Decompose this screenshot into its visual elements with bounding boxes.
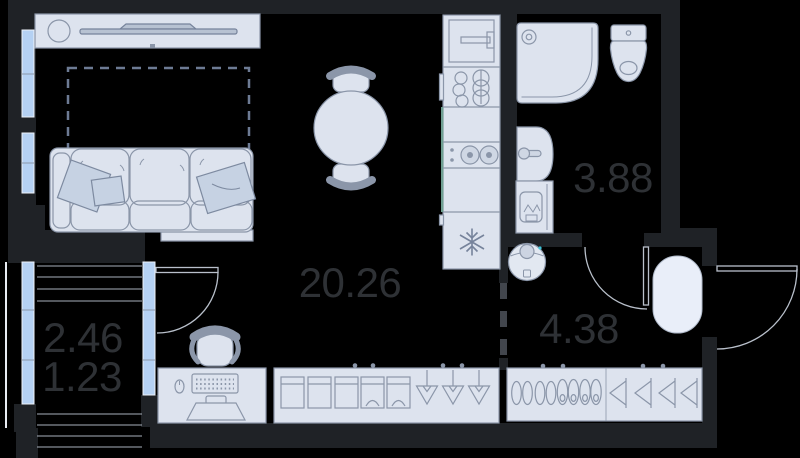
living-kitchen-area-label: 20.26: [299, 259, 402, 306]
dining-chair-top: [330, 70, 372, 93]
robot-vacuum-icon: [509, 244, 546, 281]
fridge-handle: [440, 215, 444, 225]
dining-chair-bottom: [330, 164, 372, 187]
dining-table: [314, 91, 388, 165]
tv-console: [35, 14, 260, 48]
shower-icon: [517, 23, 598, 103]
office-chair: [192, 330, 239, 366]
balcony-area-reduced-label: 1.23: [42, 353, 122, 400]
entry-rug: [653, 256, 702, 333]
washing-machine-icon: [516, 181, 553, 233]
sofa: [50, 148, 255, 241]
cabinet-handle: [440, 74, 444, 100]
floor-plan: 20.26 3.88 4.38 2.46 1.23: [0, 0, 800, 458]
counter-accent-strip: [441, 107, 444, 212]
bathroom-area-label: 3.88: [573, 154, 653, 201]
balcony-glazing-left: [22, 262, 34, 404]
bathroom-sink-icon: [517, 127, 553, 181]
balcony-glazing-right: [143, 262, 155, 395]
vacuum-indicator: [538, 246, 541, 249]
mouse-icon: [175, 380, 184, 393]
hallway-area-label: 4.38: [539, 305, 619, 352]
hallway-closet: [507, 368, 702, 421]
balcony-outer-edge: [5, 262, 7, 428]
floor-plan-drawing: 20.26 3.88 4.38 2.46 1.23: [0, 0, 800, 458]
kitchen-column: [440, 15, 501, 269]
